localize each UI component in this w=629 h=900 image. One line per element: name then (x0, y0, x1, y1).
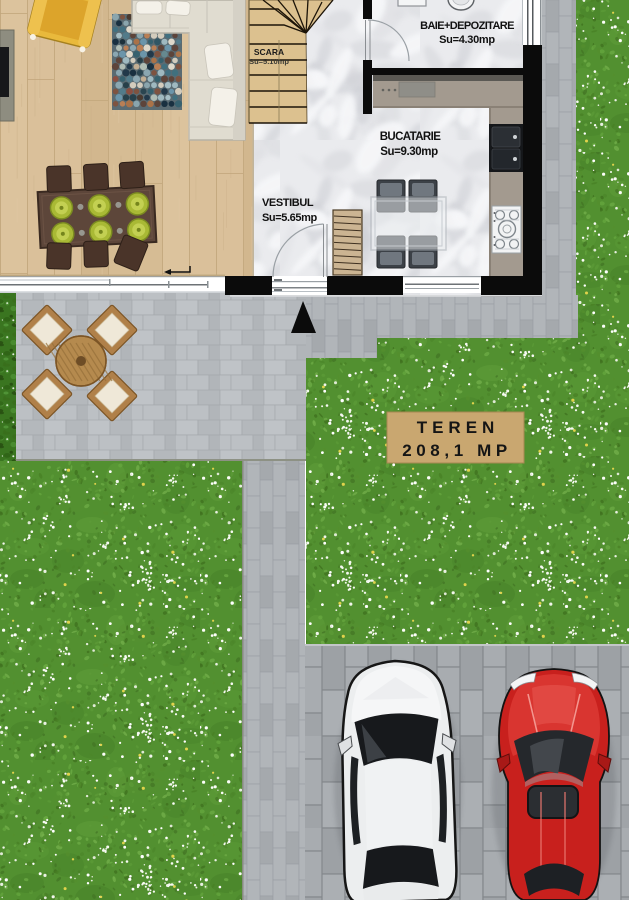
svg-text:TEREN: TEREN (417, 418, 500, 437)
svg-text:VESTIBUL: VESTIBUL (262, 197, 314, 209)
svg-text:BAIE+DEPOZITARE: BAIE+DEPOZITARE (420, 20, 514, 32)
svg-text:Su=4.30mp: Su=4.30mp (439, 34, 495, 46)
svg-text:Su=9.30mp: Su=9.30mp (380, 146, 438, 158)
svg-text:208,1 MP: 208,1 MP (402, 441, 512, 460)
svg-text:SCARA: SCARA (254, 47, 284, 57)
svg-text:BUCATARIE: BUCATARIE (380, 131, 442, 143)
svg-text:Su=5.10mp: Su=5.10mp (249, 57, 289, 66)
svg-text:Su=5.65mp: Su=5.65mp (262, 212, 317, 224)
